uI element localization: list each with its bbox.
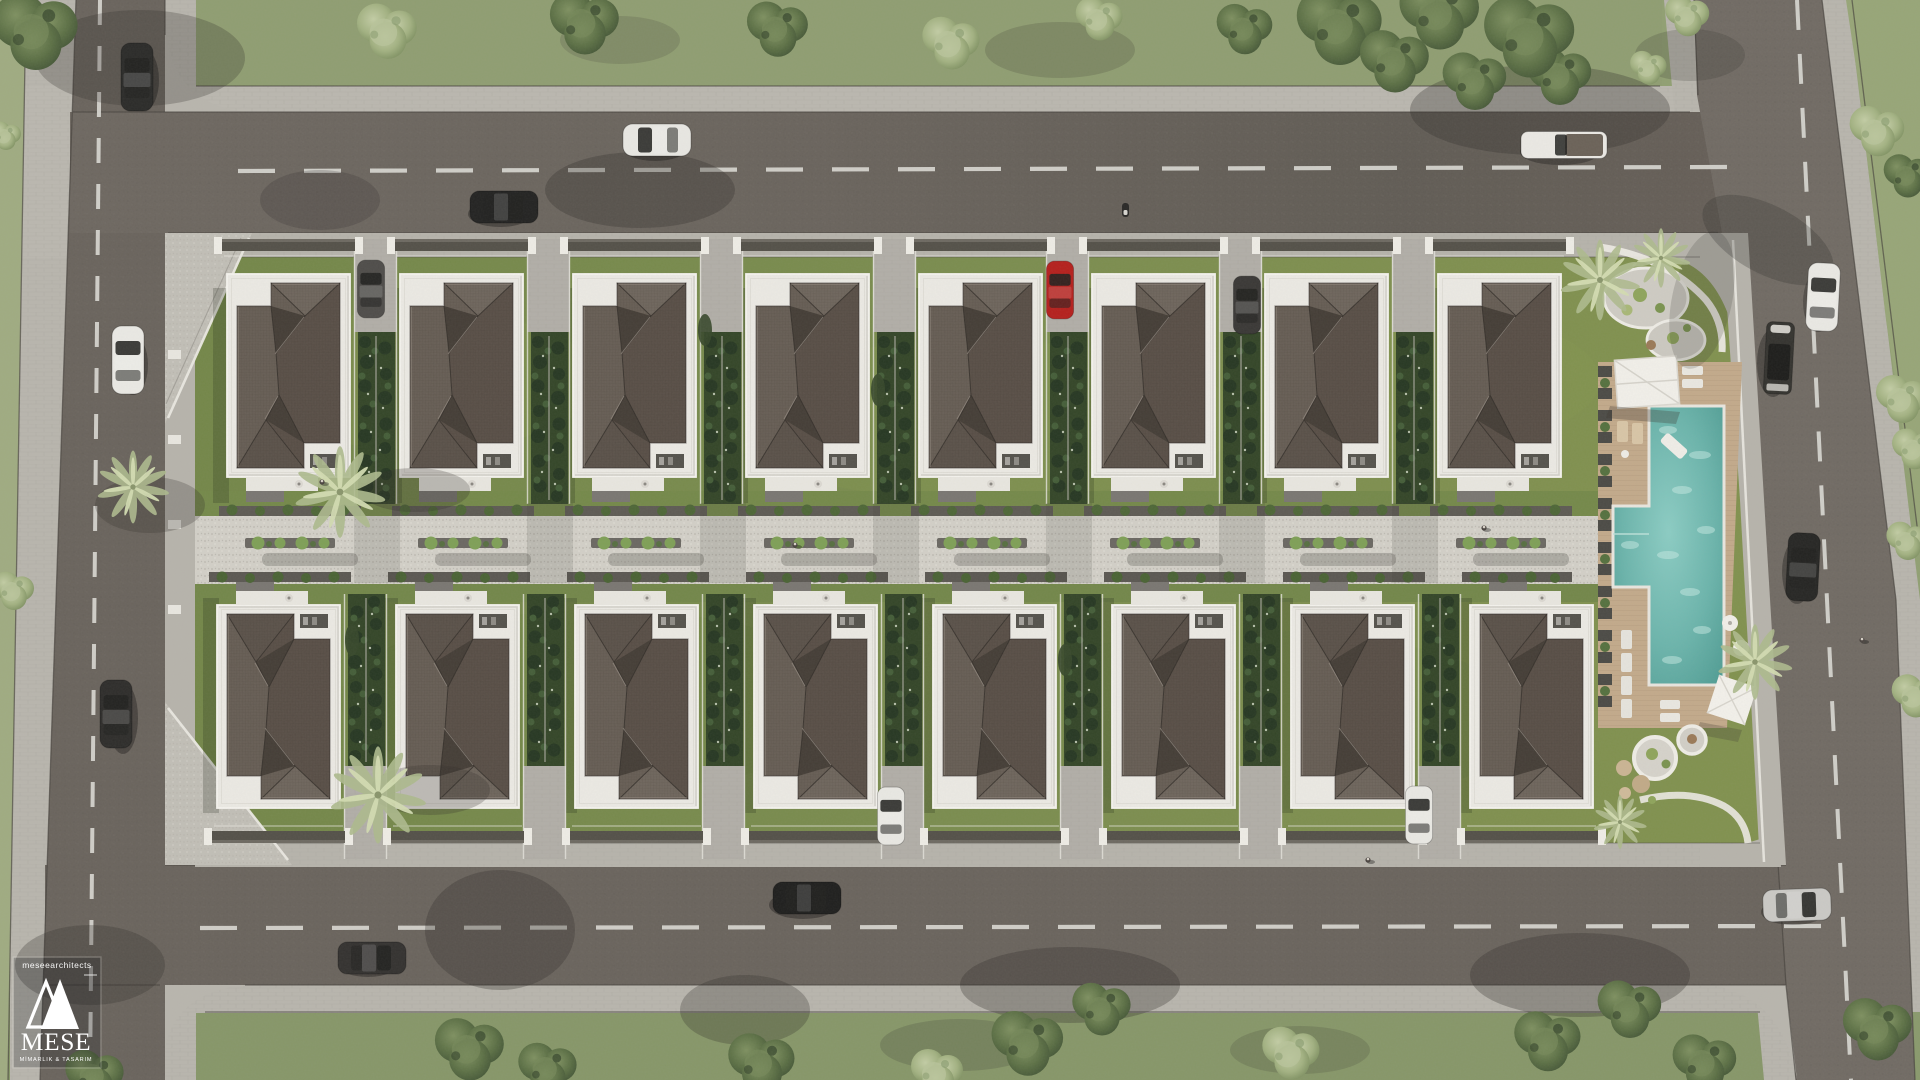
svg-text:MESE: MESE	[21, 1027, 91, 1056]
svg-text:meseearchitects: meseearchitects	[22, 960, 91, 970]
svg-text:MİMARLIK & TASARIM: MİMARLIK & TASARIM	[20, 1056, 93, 1063]
